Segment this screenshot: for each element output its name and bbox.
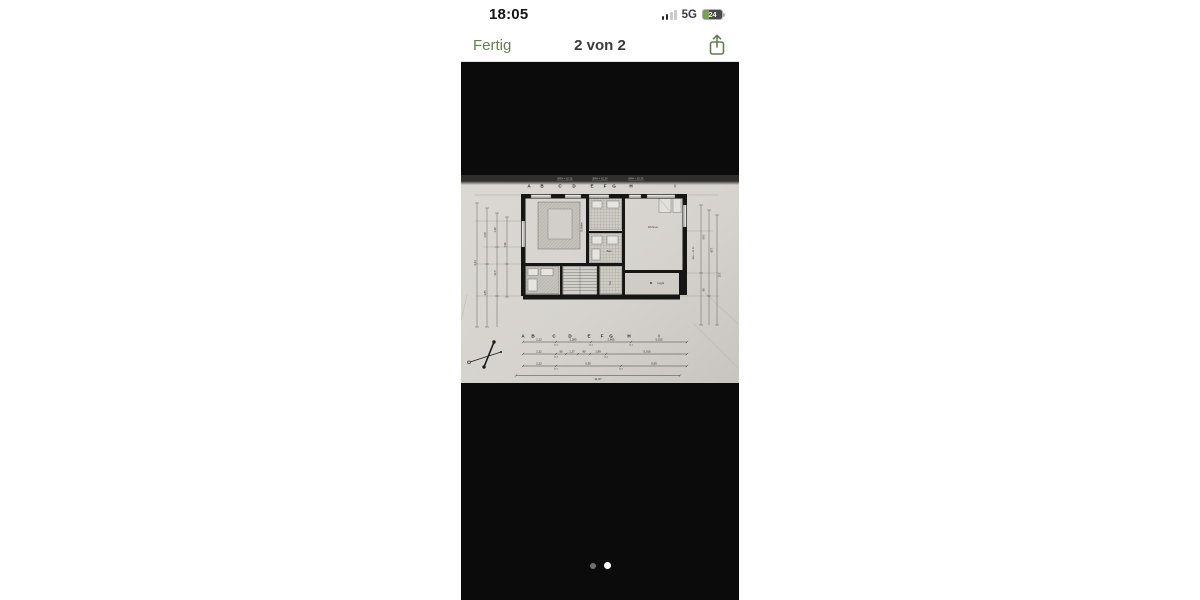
- status-indicators: 5G 24: [662, 9, 725, 21]
- phone-screen: 18:05 5G 24 Fertig 2 von 2: [461, 0, 739, 600]
- share-icon: [707, 33, 727, 57]
- svg-text:5,30: 5,30: [585, 362, 591, 366]
- page-dot-2[interactable]: [604, 562, 611, 569]
- bedroom: Schlafen: [538, 202, 584, 249]
- svg-text:2,22: 2,22: [536, 338, 542, 342]
- battery-icon: 24: [702, 9, 725, 21]
- svg-text:11,97: 11,97: [594, 377, 602, 381]
- svg-text:3,51: 3,51: [718, 272, 722, 278]
- svg-text:3,44: 3,44: [473, 260, 477, 266]
- svg-text:I: I: [674, 184, 675, 189]
- header-notes: BRH = 62,36 BRH = 62,24 BRH + 62,36: [557, 177, 644, 181]
- svg-text:1,99: 1,99: [595, 350, 601, 354]
- svg-text:1,27: 1,27: [569, 350, 575, 354]
- status-bar: 18:05 5G 24: [461, 0, 739, 29]
- svg-text:2,285: 2,285: [570, 338, 577, 342]
- svg-text:Bad: Bad: [607, 249, 612, 253]
- svg-text:5,50: 5,50: [651, 362, 657, 366]
- loggia: Loggia: [625, 274, 679, 295]
- svg-text:BRH = 62,36: BRH = 62,36: [558, 177, 573, 181]
- floor-plan-drawing: BRH = 62,36 BRH = 62,24 BRH + 62,36 A B …: [461, 175, 739, 383]
- svg-text:1,38: 1,38: [493, 227, 497, 233]
- svg-text:5,015: 5,015: [656, 338, 663, 342]
- svg-text:F: F: [604, 184, 607, 189]
- svg-text:BRH = 62,24: BRH = 62,24: [593, 177, 608, 181]
- staircase: [563, 267, 597, 295]
- svg-text:2,22: 2,22: [536, 362, 542, 366]
- svg-text:Flur: Flur: [609, 281, 612, 285]
- svg-text:BRH + 62,36: BRH + 62,36: [629, 177, 644, 181]
- svg-text:80: 80: [582, 350, 586, 354]
- photo-viewer[interactable]: BRH = 62,36 BRH = 62,24 BRH + 62,36 A B …: [461, 62, 739, 600]
- svg-text:1,85: 1,85: [483, 290, 487, 296]
- network-type-label: 5G: [682, 9, 697, 21]
- svg-text:90: 90: [559, 350, 563, 354]
- svg-text:2,08: 2,08: [483, 232, 487, 238]
- svg-text:2,22: 2,22: [536, 350, 542, 354]
- battery-percent: 24: [703, 10, 722, 20]
- svg-text:2,665: 2,665: [608, 338, 615, 342]
- svg-text:1,38: 1,38: [710, 247, 714, 253]
- hallway: Flur: [600, 267, 622, 294]
- page-indicator: [461, 562, 739, 569]
- svg-text:Wohnen: Wohnen: [648, 225, 659, 229]
- floor-plan-photo[interactable]: BRH = 62,36 BRH = 62,24 BRH + 62,36 A B …: [461, 175, 739, 383]
- svg-text:E: E: [587, 334, 590, 339]
- svg-text:E: E: [590, 184, 593, 189]
- cellular-signal-icon: [662, 10, 677, 20]
- done-button[interactable]: Fertig: [473, 37, 511, 54]
- svg-text:Loggia: Loggia: [657, 282, 665, 285]
- svg-text:5,015: 5,015: [644, 350, 651, 354]
- small-bath: [526, 267, 559, 294]
- svg-text:G: G: [612, 184, 616, 189]
- page-dot-1[interactable]: [590, 563, 596, 569]
- svg-text:BRH + 62,36: BRH + 62,36: [693, 246, 695, 259]
- svg-text:92,5: 92,5: [493, 270, 497, 276]
- svg-text:Schlafen: Schlafen: [580, 221, 584, 232]
- svg-text:F: F: [601, 334, 604, 339]
- svg-text:2,60: 2,60: [702, 234, 706, 240]
- nav-bar: Fertig 2 von 2: [461, 29, 739, 62]
- share-button[interactable]: [707, 33, 727, 57]
- clock: 18:05: [489, 6, 528, 23]
- svg-text:1,96: 1,96: [503, 242, 507, 248]
